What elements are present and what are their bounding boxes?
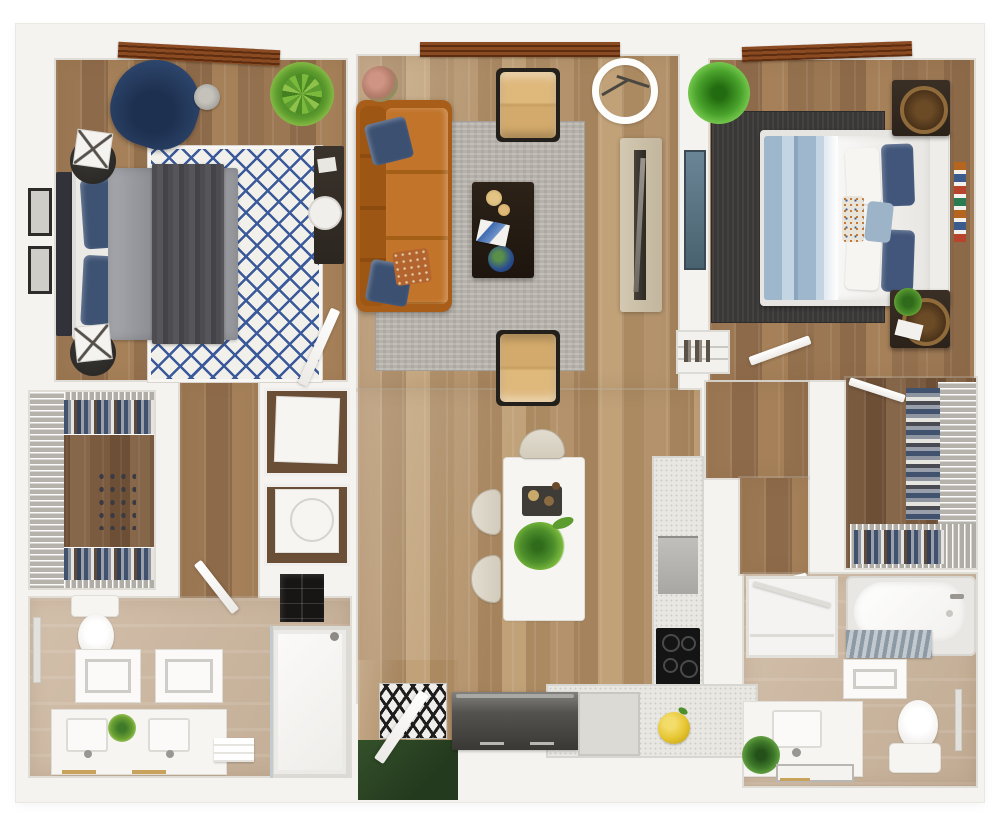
dryer bbox=[275, 397, 339, 463]
arc-floor-lamp-ring bbox=[592, 58, 658, 124]
toilet2-bowl bbox=[898, 700, 938, 750]
gallery-strip bbox=[954, 162, 966, 242]
armchair-top-cushion bbox=[500, 72, 556, 138]
kitchen-oven bbox=[658, 536, 698, 594]
closet-right-clothes-side bbox=[906, 388, 940, 520]
coffee-table-plate-1 bbox=[486, 190, 502, 206]
island-dessert-dot bbox=[552, 482, 560, 490]
bed1-headboard bbox=[56, 172, 72, 336]
shower1-head bbox=[330, 632, 339, 641]
bed2-pillow-patterned bbox=[842, 196, 864, 242]
vanity1-sink-left bbox=[66, 718, 108, 752]
towel-bar1 bbox=[34, 618, 40, 682]
bedroom1-plant-leaves bbox=[282, 74, 322, 114]
nightstand2-top-ring-lamp bbox=[900, 86, 948, 134]
grass-outside bbox=[358, 740, 458, 800]
washer-door-ring bbox=[290, 498, 334, 542]
closet-left-clothes-top bbox=[64, 398, 154, 434]
kitchen-dark-cabinet bbox=[452, 692, 578, 750]
bath2-linen-niche bbox=[746, 576, 838, 658]
kitchen-white-cabinet bbox=[578, 692, 640, 756]
glass-front-cabinet bbox=[280, 574, 324, 622]
closet-left-wire-left bbox=[30, 392, 64, 588]
closet-right-wire-right bbox=[938, 382, 976, 524]
cooktop-burner-1 bbox=[662, 634, 680, 652]
vanity1-sink-right bbox=[148, 718, 190, 752]
floorplan-canvas bbox=[0, 0, 1000, 818]
bath1-mat-right bbox=[156, 650, 222, 702]
vanity1-gold-trim-2 bbox=[132, 770, 166, 774]
shower1-glass-edge bbox=[270, 626, 273, 778]
coffee-table-globe bbox=[488, 246, 514, 272]
bed2-pillow-lightblue bbox=[864, 201, 894, 243]
bed2-sheet-fold-edge bbox=[824, 136, 838, 300]
vanity2-plant bbox=[742, 736, 780, 774]
bath1-mat-left bbox=[76, 650, 140, 702]
wall-frame-1 bbox=[28, 188, 52, 236]
closet-left-wire-bottom-rail bbox=[64, 580, 154, 588]
vanity2-sink bbox=[772, 710, 822, 748]
bed2-pillow-navy-top bbox=[881, 143, 915, 206]
shower1-floor bbox=[278, 634, 342, 770]
kitchen-cabinet-handle-2 bbox=[530, 742, 554, 745]
bed2-blue-folded-sheets bbox=[764, 136, 826, 300]
towel-bar2 bbox=[956, 690, 961, 750]
bath2-gold-trim-accent bbox=[780, 778, 810, 781]
bathtub-faucet bbox=[950, 594, 964, 599]
cooktop-burner-2 bbox=[681, 636, 696, 651]
sofa-pillow-patterned bbox=[392, 248, 432, 287]
desk-chair bbox=[310, 198, 340, 228]
living-room-window bbox=[420, 42, 620, 57]
vanity2-faucet bbox=[792, 748, 801, 757]
cooktop-burner-3 bbox=[663, 658, 678, 673]
bedroom2-wall-art bbox=[684, 150, 706, 270]
island-cup-1 bbox=[528, 490, 539, 501]
closet-left-shoes bbox=[96, 470, 136, 530]
vanity1-gold-trim-1 bbox=[62, 770, 96, 774]
bedroom2-plant bbox=[688, 62, 750, 124]
island-tray bbox=[522, 486, 562, 516]
bath2-striped-glass-panel bbox=[846, 630, 932, 658]
vanity1-faucet-right bbox=[166, 750, 174, 758]
bath2-mat bbox=[844, 660, 906, 698]
cooktop-burner-4 bbox=[680, 660, 698, 678]
towels1-folded bbox=[214, 738, 254, 762]
kitchen-dark-cabinet-trim bbox=[456, 694, 574, 698]
toilet1-tank bbox=[72, 596, 118, 616]
coffee-table-plate-2 bbox=[498, 204, 510, 216]
island-cup-2 bbox=[544, 496, 554, 506]
closet-right-clothes-bottom bbox=[854, 530, 944, 564]
kitchen-cabinet-handle-1 bbox=[480, 742, 504, 745]
wall-frame-2 bbox=[28, 246, 52, 294]
hall-right-floor-upper bbox=[706, 382, 808, 478]
side-table-round bbox=[194, 84, 220, 110]
desk-papers bbox=[317, 157, 337, 173]
vanity1-faucet-left bbox=[84, 750, 92, 758]
lemon-bowl bbox=[658, 712, 690, 744]
closet-left-wire-top-rail bbox=[64, 392, 154, 400]
toilet2-tank bbox=[890, 744, 940, 772]
bathtub-drain bbox=[946, 610, 953, 617]
vanity1-pineapple-plant bbox=[108, 714, 136, 742]
bed2-headboard bbox=[928, 124, 948, 312]
lamp1-top bbox=[74, 130, 112, 168]
linen-closet-items bbox=[684, 340, 710, 362]
hall-right-floor-lower bbox=[740, 478, 808, 574]
armchair-bottom-cushion bbox=[500, 334, 556, 402]
flower-vase bbox=[362, 66, 398, 102]
bath2-niche-shelf-line bbox=[750, 634, 834, 637]
bed1-dark-throw bbox=[152, 164, 224, 344]
nightstand2-plant bbox=[894, 288, 922, 316]
lamp1-bottom bbox=[74, 324, 111, 361]
